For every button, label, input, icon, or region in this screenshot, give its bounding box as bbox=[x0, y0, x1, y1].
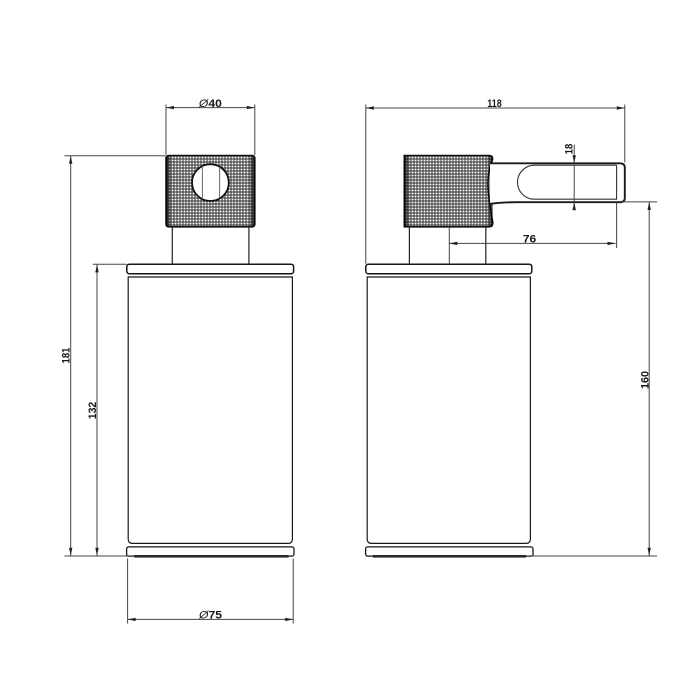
svg-text:118: 118 bbox=[487, 98, 502, 110]
svg-text:181: 181 bbox=[61, 348, 73, 364]
svg-text:76: 76 bbox=[523, 234, 536, 246]
svg-text:Ø40: Ø40 bbox=[198, 98, 222, 110]
svg-text:132: 132 bbox=[87, 402, 99, 420]
svg-text:Ø75: Ø75 bbox=[198, 610, 222, 622]
svg-text:18: 18 bbox=[563, 144, 575, 155]
svg-text:160: 160 bbox=[639, 371, 651, 389]
